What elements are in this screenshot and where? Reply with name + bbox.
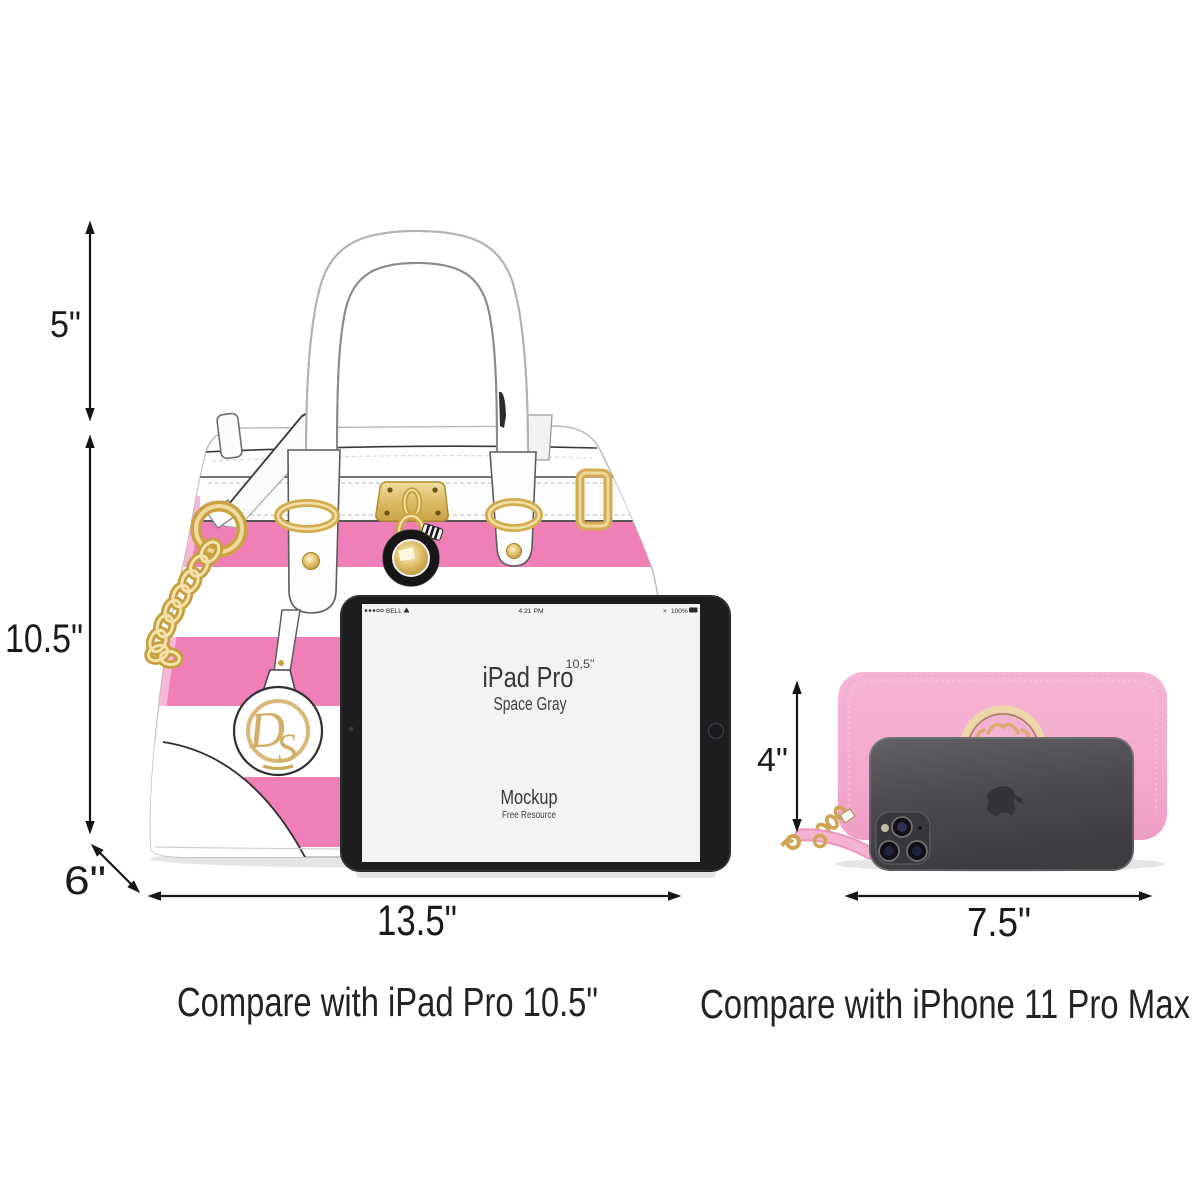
svg-text:Compare with iPad Pro 10.5": Compare with iPad Pro 10.5" xyxy=(177,979,598,1025)
svg-text:13.5": 13.5" xyxy=(377,897,457,945)
svg-text:10.5": 10.5" xyxy=(5,617,83,661)
svg-text:5": 5" xyxy=(50,304,81,345)
svg-text:4:21 PM: 4:21 PM xyxy=(518,608,544,615)
svg-text:iPad Pro: iPad Pro xyxy=(483,662,574,694)
svg-text:6": 6" xyxy=(64,859,106,903)
svg-text:Mockup: Mockup xyxy=(501,787,558,809)
svg-text:Compare with iPhone 11 Pro Max: Compare with iPhone 11 Pro Max xyxy=(700,981,1190,1027)
svg-text:×: × xyxy=(663,608,667,615)
svg-text:10,5": 10,5" xyxy=(566,657,595,671)
svg-text:Free Resource: Free Resource xyxy=(502,809,556,821)
svg-text:4": 4" xyxy=(757,741,788,778)
svg-text:100%: 100% xyxy=(671,608,688,615)
svg-text:7.5": 7.5" xyxy=(967,899,1031,945)
svg-text:BELL: BELL xyxy=(386,608,402,615)
svg-text:Space Gray: Space Gray xyxy=(494,693,568,714)
